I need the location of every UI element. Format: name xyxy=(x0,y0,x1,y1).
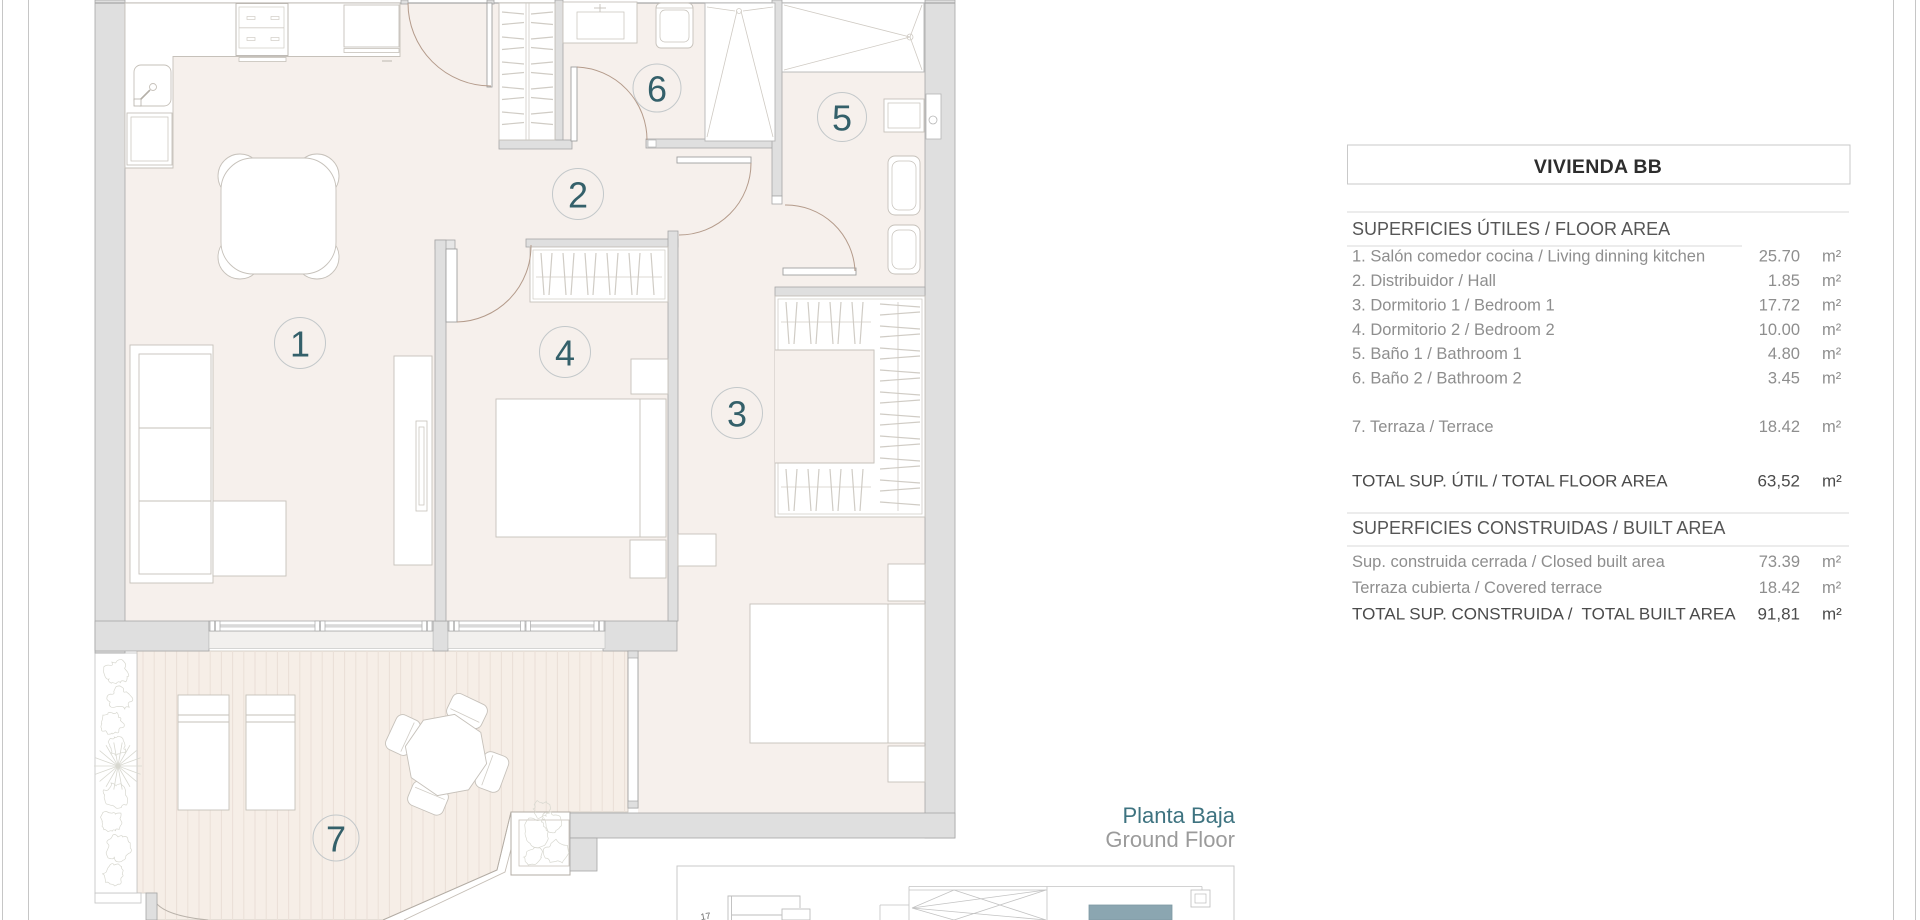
svg-text:18.42: 18.42 xyxy=(1759,579,1800,597)
svg-text:m²: m² xyxy=(1822,272,1842,290)
svg-text:m²: m² xyxy=(1822,605,1842,624)
svg-text:4: 4 xyxy=(555,333,575,374)
svg-text:73.39: 73.39 xyxy=(1759,553,1800,571)
svg-text:3.45: 3.45 xyxy=(1768,370,1800,388)
svg-text:3: 3 xyxy=(727,394,747,435)
svg-text:1.85: 1.85 xyxy=(1768,272,1800,290)
svg-text:7. Terraza / Terrace: 7. Terraza / Terrace xyxy=(1352,418,1494,436)
svg-text:6. Baño 2 / Bathroom 2: 6. Baño 2 / Bathroom 2 xyxy=(1352,370,1522,388)
svg-text:2: 2 xyxy=(568,175,588,216)
svg-text:m²: m² xyxy=(1822,297,1842,315)
svg-text:SUPERFICIES ÚTILES / FLOOR ARE: SUPERFICIES ÚTILES / FLOOR AREA xyxy=(1352,218,1670,239)
svg-text:m²: m² xyxy=(1822,248,1842,266)
svg-text:VIVIENDA BB: VIVIENDA BB xyxy=(1534,156,1662,178)
svg-text:1. Salón comedor cocina / Livi: 1. Salón comedor cocina / Living dinning… xyxy=(1352,248,1705,266)
svg-text:Planta Baja: Planta Baja xyxy=(1122,803,1235,828)
svg-text:Terraza cubierta / Covered ter: Terraza cubierta / Covered terrace xyxy=(1352,579,1602,597)
svg-text:7: 7 xyxy=(326,819,346,860)
svg-text:17.72: 17.72 xyxy=(1759,297,1800,315)
svg-text:4. Dormitorio 2 / Bedroom 2: 4. Dormitorio 2 / Bedroom 2 xyxy=(1352,321,1555,339)
svg-text:m²: m² xyxy=(1822,418,1842,436)
svg-text:2. Distribuidor / Hall: 2. Distribuidor / Hall xyxy=(1352,272,1496,290)
svg-text:5. Baño 1 / Bathroom 1: 5. Baño 1 / Bathroom 1 xyxy=(1352,345,1522,363)
svg-text:m²: m² xyxy=(1822,553,1842,571)
svg-text:SUPERFICIES CONSTRUIDAS / BUIL: SUPERFICIES CONSTRUIDAS / BUILT AREA xyxy=(1352,518,1725,538)
svg-text:3. Dormitorio 1 / Bedroom 1: 3. Dormitorio 1 / Bedroom 1 xyxy=(1352,297,1555,315)
svg-text:Sup. construida cerrada / Clos: Sup. construida cerrada / Closed built a… xyxy=(1352,553,1666,571)
svg-text:TOTAL SUP. ÚTIL / TOTAL FLOOR: TOTAL SUP. ÚTIL / TOTAL FLOOR AREA xyxy=(1352,472,1668,491)
svg-text:5: 5 xyxy=(832,98,852,139)
svg-text:Ground Floor: Ground Floor xyxy=(1105,827,1235,852)
svg-text:TOTAL SUP. CONSTRUIDA / TOTAL: TOTAL SUP. CONSTRUIDA / TOTAL BUILT AREA xyxy=(1352,605,1736,624)
svg-text:m²: m² xyxy=(1822,472,1842,491)
svg-text:m²: m² xyxy=(1822,321,1842,339)
svg-text:17: 17 xyxy=(700,911,711,920)
svg-text:10.00: 10.00 xyxy=(1759,321,1800,339)
svg-text:25.70: 25.70 xyxy=(1759,248,1800,266)
svg-text:m²: m² xyxy=(1822,579,1842,597)
svg-text:m²: m² xyxy=(1822,345,1842,363)
svg-text:63,52: 63,52 xyxy=(1757,472,1800,491)
svg-text:91,81: 91,81 xyxy=(1757,605,1800,624)
svg-text:18.42: 18.42 xyxy=(1759,418,1800,436)
svg-text:4.80: 4.80 xyxy=(1768,345,1800,363)
svg-text:m²: m² xyxy=(1822,370,1842,388)
svg-text:1: 1 xyxy=(290,324,310,365)
svg-text:6: 6 xyxy=(647,69,667,110)
